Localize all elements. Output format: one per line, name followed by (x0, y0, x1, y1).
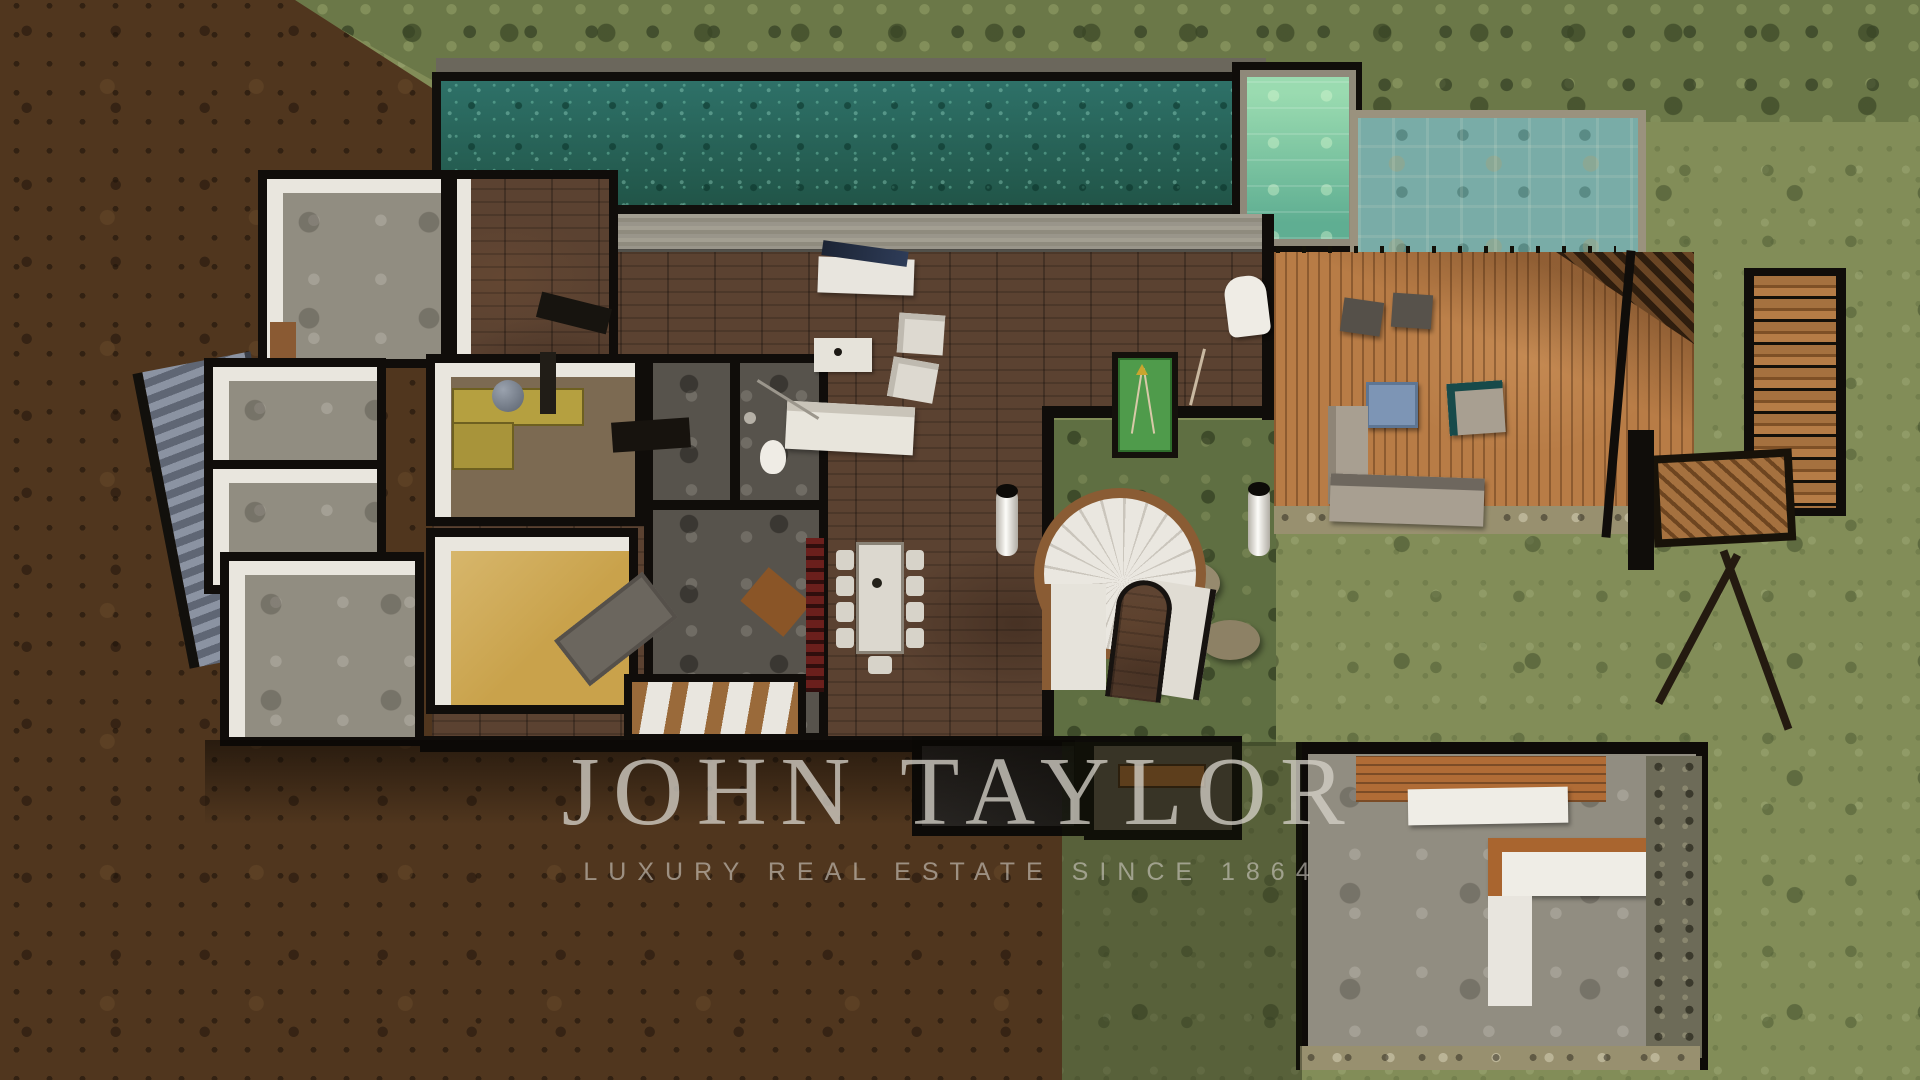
closet-shelving (624, 674, 806, 742)
dining-chair (836, 576, 854, 596)
office-desk-return (452, 422, 514, 470)
floor-lamp-head (744, 412, 756, 424)
gym-ball (492, 380, 524, 412)
dining-chair (836, 628, 854, 648)
garage-door (270, 322, 296, 358)
armchair (897, 312, 946, 355)
terrace-stone-column (1646, 756, 1702, 1058)
deck-armchair (1446, 380, 1505, 436)
aerial-floorplan-render: JOHN TAYLOR LUXURY REAL ESTATE SINCE 186… (0, 0, 1920, 1080)
dining-chair (906, 576, 924, 596)
boardwalk-connector (1628, 430, 1654, 570)
dining-chair (906, 550, 924, 570)
deck-railing-posts (1276, 246, 1616, 253)
dining-chair (906, 628, 924, 648)
terrace-white-partition (1408, 787, 1569, 826)
dining-table (856, 542, 904, 654)
dining-chair (906, 602, 924, 622)
structural-column (996, 488, 1018, 556)
deck-ottoman (1391, 293, 1433, 330)
terrace-white-wall (1488, 896, 1532, 1006)
room-bedroom-3 (220, 552, 424, 746)
brand-tagline: LUXURY REAL ESTATE SINCE 1864 (583, 858, 1320, 887)
terrace-base-wall (1300, 1046, 1700, 1070)
dining-chair (868, 656, 892, 674)
armchair (887, 356, 939, 403)
billiard-table (1112, 352, 1178, 458)
gym-equipment (611, 417, 691, 452)
dining-chair (836, 602, 854, 622)
dining-chair (836, 550, 854, 570)
deck-coffee-table (1366, 382, 1418, 428)
spiral-staircase (1030, 488, 1226, 698)
brand-watermark: JOHN TAYLOR (562, 736, 1358, 847)
coffee-table-decor (834, 348, 842, 356)
deck-sofa (1329, 473, 1485, 526)
dining-decor (872, 578, 882, 588)
gym-machine (540, 352, 556, 414)
deck-ottoman (1340, 297, 1384, 336)
boardwalk-turn (1650, 448, 1797, 547)
structural-column (1248, 486, 1270, 556)
red-bookshelf (806, 538, 824, 692)
stair-leg-left (1042, 584, 1106, 690)
bathroom-divider (730, 360, 740, 510)
toilet (760, 440, 786, 474)
coffee-table (814, 338, 872, 372)
